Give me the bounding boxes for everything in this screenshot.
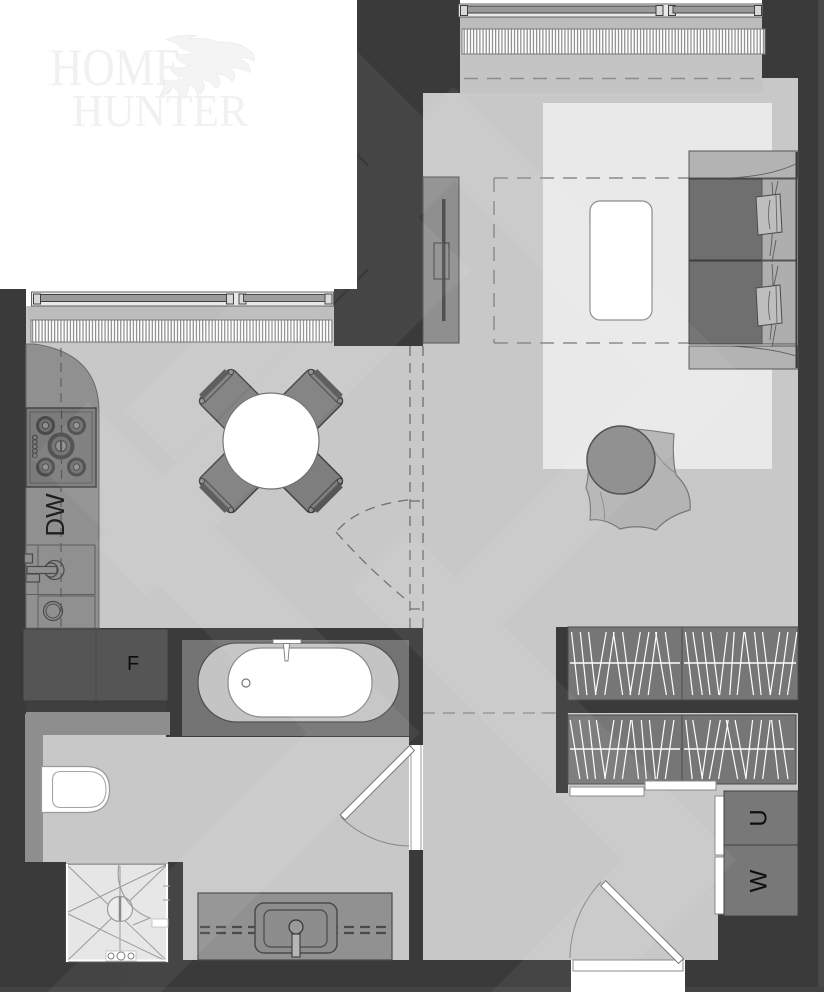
svg-text:U: U (746, 809, 773, 826)
svg-text:F: F (127, 653, 139, 675)
svg-text:DW: DW (40, 493, 70, 537)
svg-text:W: W (746, 869, 773, 892)
